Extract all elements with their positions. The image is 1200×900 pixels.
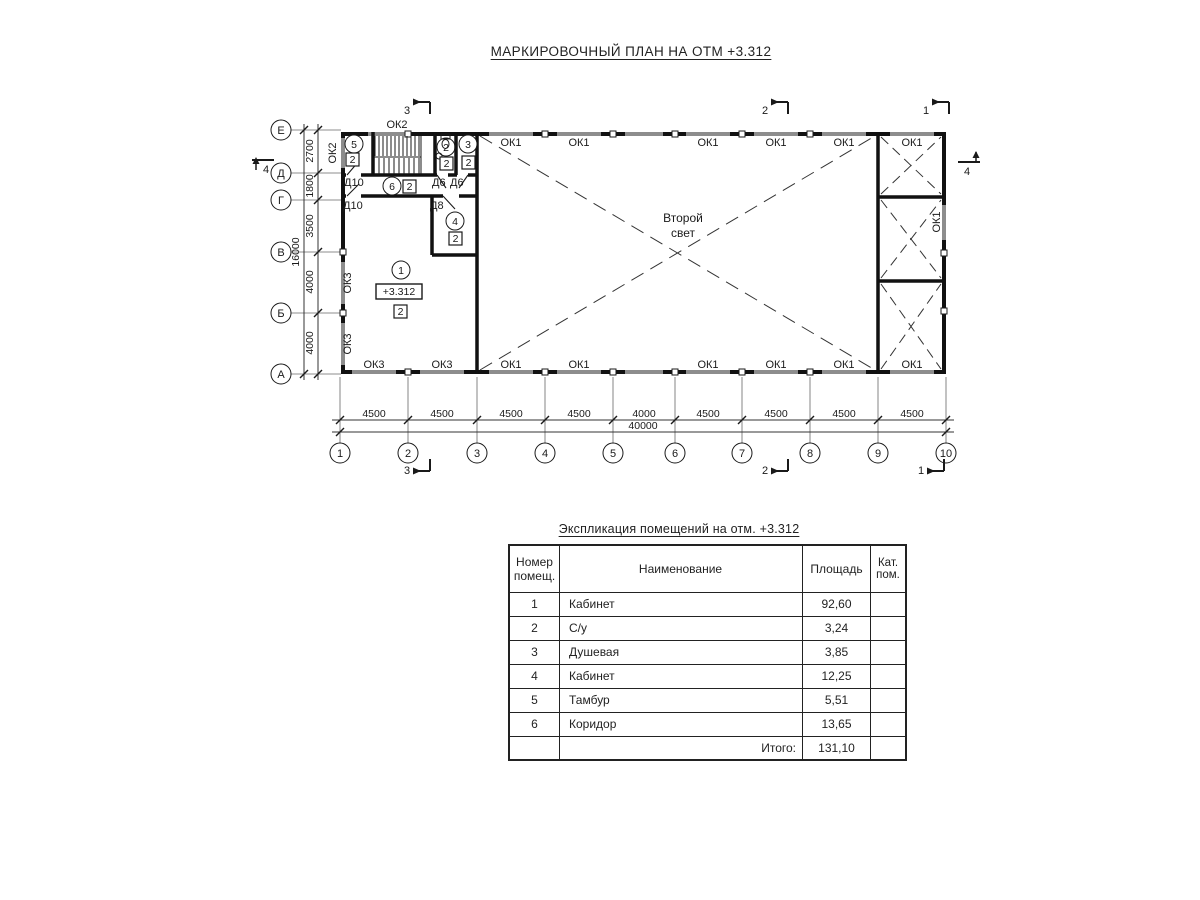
dim-label: 3500	[304, 214, 316, 238]
dim-label: 4000	[304, 270, 316, 294]
window-label: ОК1	[765, 137, 786, 149]
header-area: Площадь	[803, 545, 871, 592]
section-label: 4	[263, 164, 269, 176]
dim-label: 4000	[632, 408, 656, 420]
header-name: Наименование	[560, 545, 803, 592]
total-label: Итого:	[560, 736, 803, 760]
table-row: 6 Коридор 13,65	[509, 712, 906, 736]
door-label: Д6	[432, 177, 446, 189]
table-row: 5 Тамбур 5,51	[509, 688, 906, 712]
dim-label: 4500	[567, 408, 591, 420]
window-label: ОК2	[386, 119, 407, 131]
door-label: Д8	[430, 200, 444, 212]
window-label: ОК3	[342, 333, 354, 354]
shaft-crosses	[881, 137, 941, 369]
window-label: ОК1	[833, 137, 854, 149]
header-room-number: Номер помещ.	[509, 545, 560, 592]
dim-label: 2700	[304, 139, 316, 163]
grid-row-label: А	[277, 369, 285, 381]
section-label: 3	[404, 105, 410, 117]
room-category: 2	[466, 157, 472, 169]
room-number: 2	[443, 142, 449, 154]
total-value: 131,10	[803, 736, 871, 760]
table-row: 2 С/у 3,24	[509, 616, 906, 640]
window-label: ОК1	[697, 137, 718, 149]
grid-row-label: Б	[277, 308, 284, 320]
grid-row-label: Д	[277, 168, 285, 180]
window-label: ОК1	[765, 359, 786, 371]
window-label: ОК1	[568, 137, 589, 149]
room-number: 3	[465, 139, 471, 151]
window-label: ОК1	[697, 359, 718, 371]
dim-label: 4500	[900, 408, 924, 420]
header-category: Кат. пом.	[871, 545, 907, 592]
table-header-row: Номер помещ. Наименование Площадь Кат. п…	[509, 545, 906, 592]
section-markers	[252, 99, 980, 475]
elevation-mark: +3.312	[383, 286, 416, 298]
section-label: 4	[964, 166, 970, 178]
room-number: 4	[452, 216, 458, 228]
floor-plan-drawing: 4500 4500 4500 4500 4000 4500 4500 4500 …	[0, 0, 1200, 900]
window-label: ОК1	[901, 137, 922, 149]
room-category: 2	[453, 233, 459, 245]
section-label: 1	[923, 105, 929, 117]
second-light-cross	[480, 136, 875, 370]
interior-walls	[343, 132, 944, 374]
table-total-row: Итого: 131,10	[509, 736, 906, 760]
room-number: 5	[351, 139, 357, 151]
grid-col-label: 7	[739, 448, 745, 460]
window-label: ОК1	[931, 211, 943, 232]
window-label: ОК2	[327, 142, 339, 163]
grid-col-label: 1	[337, 448, 343, 460]
second-light-line1: Второй	[663, 211, 703, 225]
table-row: 4 Кабинет 12,25	[509, 664, 906, 688]
door-label: Д6	[450, 177, 464, 189]
room-category: 2	[407, 181, 413, 193]
window-label: ОК1	[500, 137, 521, 149]
section-marker-labels: 3 2 1 3 2 1 4 4	[263, 105, 970, 477]
window-label: ОК1	[833, 359, 854, 371]
dim-total-left-label: 16000	[290, 237, 302, 266]
door-label: Д10	[344, 177, 364, 189]
grid-col-label: 2	[405, 448, 411, 460]
dim-label: 4500	[499, 408, 523, 420]
section-label: 2	[762, 105, 768, 117]
room-number: 6	[389, 181, 395, 193]
room-category: 2	[398, 306, 404, 318]
door-label: Д10	[343, 200, 363, 212]
grid-col-label: 8	[807, 448, 813, 460]
window-label: ОК1	[500, 359, 521, 371]
dim-label: 1800	[304, 174, 316, 198]
window-label: ОК3	[363, 359, 384, 371]
section-label: 1	[918, 465, 924, 477]
grid-col-label: 6	[672, 448, 678, 460]
grid-col-label: 3	[474, 448, 480, 460]
section-label: 3	[404, 465, 410, 477]
room-category: 2	[444, 158, 450, 170]
grid-col-label: 9	[875, 448, 881, 460]
explication-table: Номер помещ. Наименование Площадь Кат. п…	[508, 544, 893, 761]
window-label: ОК3	[431, 359, 452, 371]
window-label: ОК1	[568, 359, 589, 371]
dimension-ticks	[300, 126, 950, 436]
dim-label: 4500	[832, 408, 856, 420]
second-light-line2: свет	[671, 226, 696, 240]
grid-col-label: 4	[542, 448, 548, 460]
grid-col-label: 5	[610, 448, 616, 460]
explication-title: Экспликация помещений на отм. +3.312	[559, 522, 800, 536]
stairs	[374, 136, 421, 174]
dim-label: 4500	[430, 408, 454, 420]
room-number: 1	[398, 265, 404, 277]
grid-col-label: 10	[940, 448, 952, 460]
window-label: ОК3	[342, 272, 354, 293]
grid-row-label: Г	[278, 195, 284, 207]
section-label: 2	[762, 465, 768, 477]
dim-label: 4000	[304, 331, 316, 355]
window-label: ОК1	[901, 359, 922, 371]
room-category: 2	[350, 154, 356, 166]
dim-label: 4500	[362, 408, 386, 420]
dim-total-label: 40000	[628, 420, 657, 432]
grid-row-label: В	[277, 247, 284, 259]
table-row: 3 Душевая 3,85	[509, 640, 906, 664]
table-row: 1 Кабинет 92,60	[509, 592, 906, 616]
grid-row-label: Е	[277, 125, 284, 137]
dim-label: 4500	[696, 408, 720, 420]
second-light-label: Второй свет	[663, 211, 703, 240]
dim-label: 4500	[764, 408, 788, 420]
